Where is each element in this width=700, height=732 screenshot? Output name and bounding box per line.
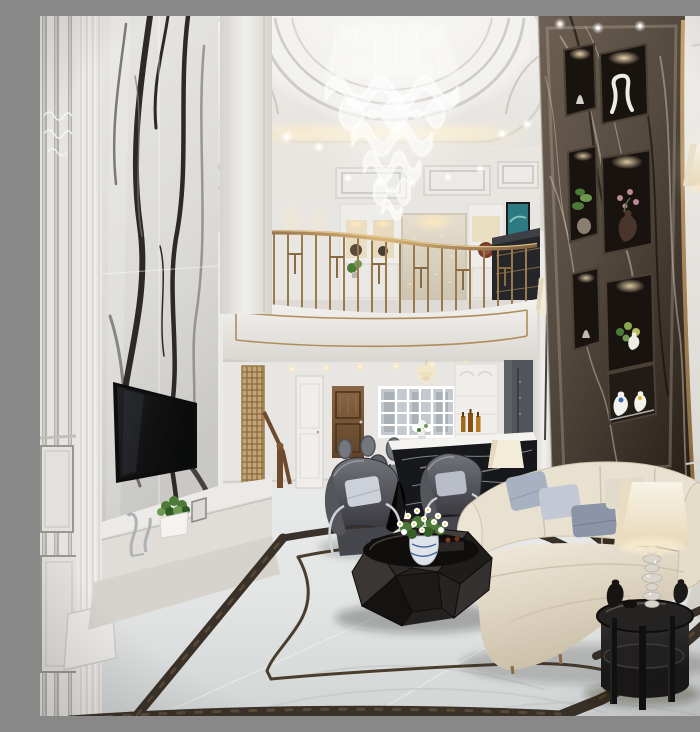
vignette-overlay: [40, 16, 700, 716]
rendered-photo: Photorealistic render of a luxury duplex…: [40, 16, 700, 716]
scene-canvas: [40, 16, 700, 716]
